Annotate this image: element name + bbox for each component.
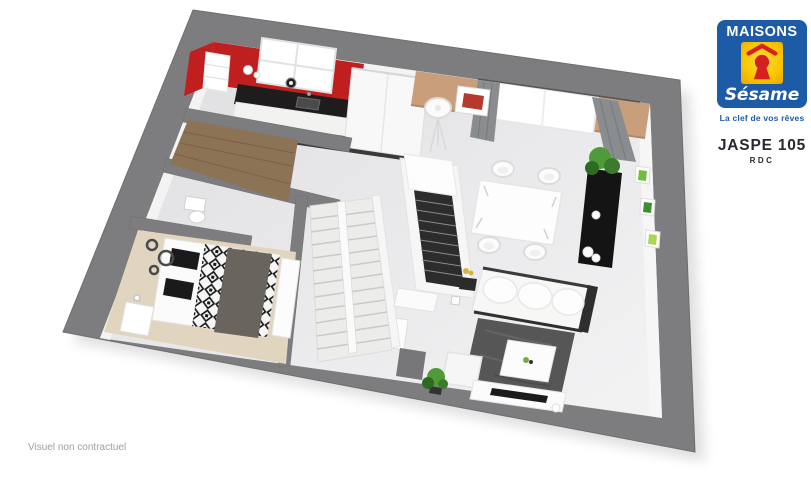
- doormat: [396, 348, 426, 380]
- page: MAISONS Sésame La clef de vos rêves JASP…: [0, 0, 811, 480]
- dining-table: [471, 180, 562, 245]
- keyhole-icon: [741, 41, 783, 85]
- floor-label: RDC: [714, 156, 810, 165]
- brand-tagline: La clef de vos rêves: [714, 113, 810, 123]
- brand-logo: MAISONS Sésame: [717, 20, 807, 108]
- coffee-table: [500, 340, 556, 382]
- model-name: JASPE 105: [714, 137, 810, 155]
- brand-name: MAISONS: [726, 25, 797, 40]
- logo-yellow-square: [741, 42, 783, 84]
- disclaimer-text: Visuel non contractuel: [28, 442, 126, 453]
- brand-block: MAISONS Sésame La clef de vos rêves JASP…: [714, 20, 810, 165]
- kitchen-window: [257, 38, 336, 93]
- floor-plan-3d: [0, 0, 811, 480]
- wall-picture-frame: [455, 86, 490, 116]
- closet-top-panel: [404, 154, 457, 196]
- brand-logo-word: Sésame: [725, 86, 800, 104]
- kitchen-wall-shelf: [203, 52, 230, 92]
